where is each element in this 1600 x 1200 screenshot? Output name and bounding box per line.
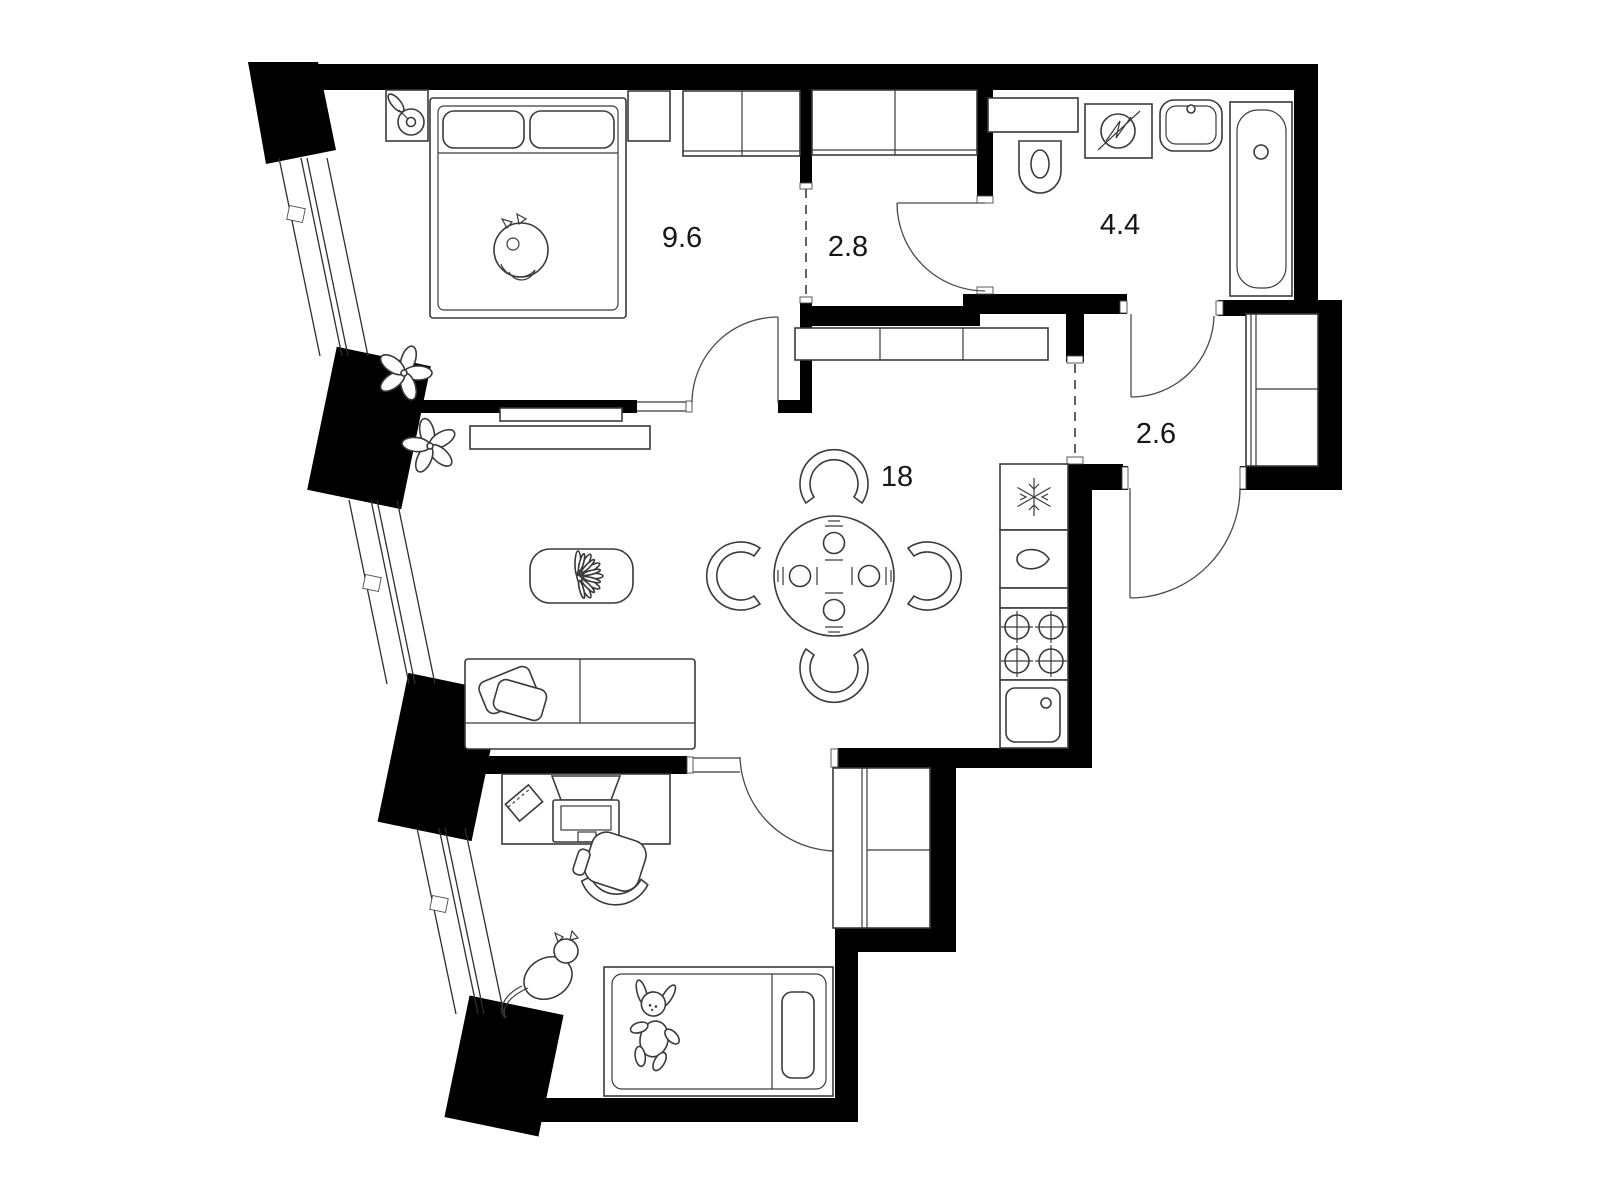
pillow-icon	[443, 111, 524, 148]
child-wardrobe-icon	[833, 768, 930, 928]
coffee-table-icon	[530, 549, 633, 603]
room-label-hallway: 2.8	[828, 231, 868, 263]
room-label-living: 18	[881, 461, 913, 493]
hallway-wardrobe-icon	[812, 90, 977, 155]
tv-console-icon	[470, 426, 650, 449]
fridge-icon	[1000, 464, 1068, 530]
bathtub-icon	[1230, 102, 1292, 296]
room-label-entry-hall: 2.6	[1136, 418, 1176, 450]
washing-machine-icon	[1085, 104, 1152, 158]
entrance-door	[1130, 488, 1240, 598]
kitchen-counter-icon	[1000, 588, 1068, 608]
dining-set	[707, 450, 962, 703]
stove-icon	[1000, 608, 1068, 680]
window-mullion-icon	[287, 206, 306, 223]
double-bed-icon	[430, 98, 626, 318]
bathroom-sink-icon	[1160, 100, 1222, 151]
bedroom-furniture	[368, 90, 800, 478]
bathroom-second-door	[897, 203, 985, 291]
dining-chair-icon	[800, 649, 868, 702]
floor-plan: 9.6 2.8 4.4 2.6 18	[0, 0, 1600, 1200]
pillow-icon	[530, 111, 614, 148]
room-label-bathroom: 4.4	[1100, 209, 1140, 241]
kitchen-fixtures	[1000, 464, 1068, 748]
dining-chair-icon	[908, 542, 961, 610]
pillow-icon	[782, 992, 814, 1078]
opening-caps	[637, 183, 1246, 773]
nightstand-icon	[628, 91, 670, 141]
dining-chair-icon	[707, 542, 760, 610]
kitchen-sink-icon	[1000, 680, 1068, 748]
window-mullion-icon	[363, 575, 382, 592]
toilet-icon	[1019, 141, 1061, 193]
living-room-furniture	[465, 328, 1048, 749]
duct-niche-icon	[988, 98, 1078, 132]
bathroom-door	[1131, 314, 1214, 397]
bathroom-fixtures	[988, 98, 1292, 296]
bedroom-door	[692, 317, 778, 403]
floor-plan-canvas: 9.6 2.8 4.4 2.6 18	[0, 0, 1600, 1200]
room-label-bedroom: 9.6	[662, 222, 702, 254]
dining-chair-icon	[800, 450, 868, 503]
storage-cabinet-icon	[795, 328, 1048, 360]
sofa-icon	[465, 659, 695, 749]
child-room-door	[740, 753, 838, 851]
tv-icon	[500, 408, 622, 421]
window-mullion-icon	[430, 896, 449, 913]
entry-wardrobe-icon	[1246, 314, 1318, 466]
bedroom-wardrobe-icon	[683, 91, 800, 156]
kitchen-cabinet-icon	[1000, 530, 1068, 588]
